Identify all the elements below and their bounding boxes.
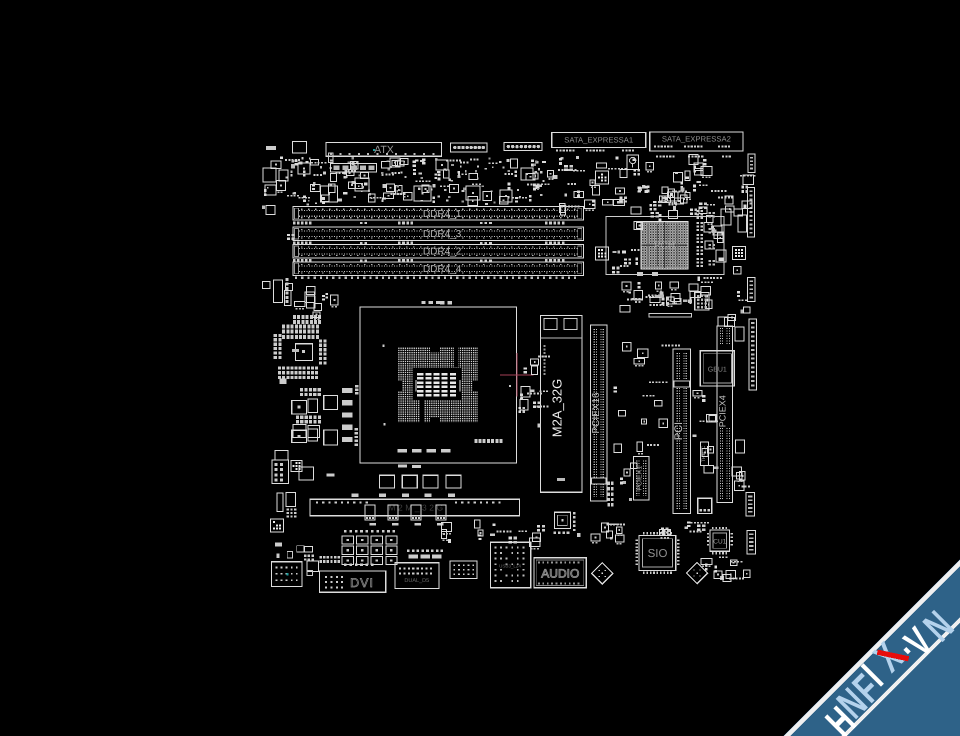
svg-text:M2A_32G: M2A_32G: [550, 379, 565, 438]
svg-text:PCH: PCH: [654, 241, 675, 252]
svg-text:PCIEX4: PCIEX4: [717, 395, 727, 427]
svg-text:DDR4_1: DDR4_1: [423, 209, 462, 220]
svg-text:M2M_32G: M2M_32G: [388, 503, 445, 513]
svg-text:PCIEX16: PCIEX16: [591, 392, 602, 434]
svg-text:PCI: PCI: [673, 422, 685, 440]
svg-text:DDR4_3: DDR4_3: [423, 229, 462, 240]
svg-text:DDR4_4: DDR4_4: [423, 264, 462, 275]
svg-text:GEU1: GEU1: [708, 367, 727, 374]
svg-text:DDR4_2: DDR4_2: [423, 247, 462, 258]
svg-text:SIO: SIO: [648, 548, 668, 560]
svg-text:USB3_L24: USB3_L24: [499, 564, 521, 569]
svg-text:DUAL_D5: DUAL_D5: [404, 578, 429, 584]
svg-text:AUDIO: AUDIO: [541, 567, 579, 581]
svg-text:SATA_EXPRESSA1: SATA_EXPRESSA1: [564, 136, 633, 145]
svg-text:CU1: CU1: [713, 539, 726, 546]
svg-text:DVI: DVI: [350, 576, 374, 590]
svg-text:SATA_EXPRESSA2: SATA_EXPRESSA2: [662, 135, 731, 144]
svg-text:PCIEX1: PCIEX1: [637, 466, 644, 491]
